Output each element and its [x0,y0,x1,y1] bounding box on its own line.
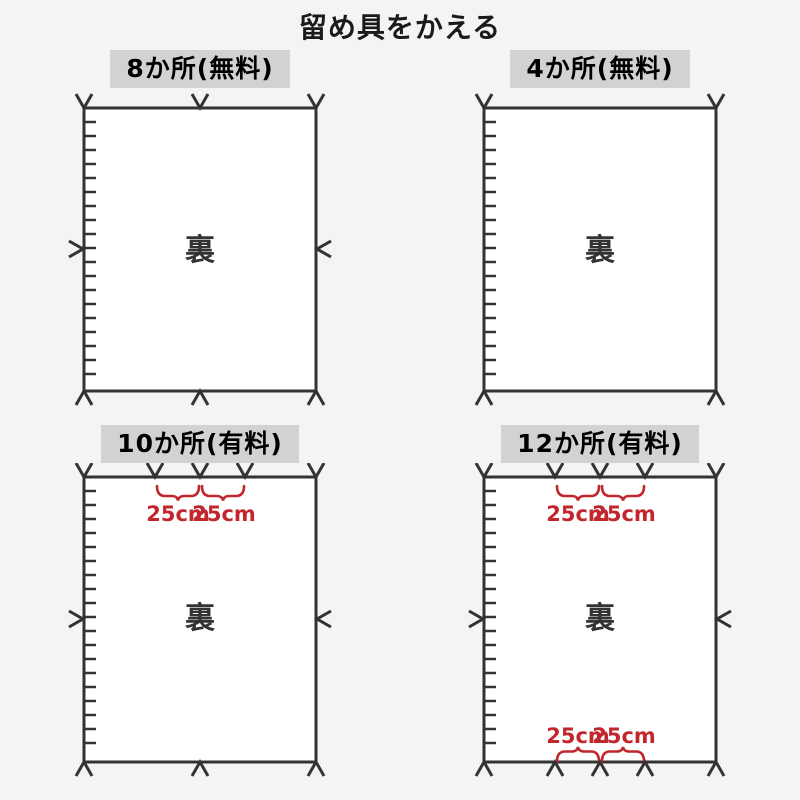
fastener-arrow-icon [708,94,724,108]
fastener-arrow-icon [547,463,563,477]
fastener-arrow-icon [592,762,608,776]
back-label: 裏 [585,601,616,636]
fastener-arrow-icon [192,762,208,776]
fastener-arrow-icon [547,762,563,776]
fastener-arrow-icon [308,391,324,405]
back-label: 裏 [585,233,616,268]
measurement-label: 25cm [592,502,656,526]
fastener-arrow-icon [69,241,83,257]
back-label: 裏 [185,601,216,636]
fastener-arrow-icon [469,611,483,627]
panel-header: 10か所(有料) [101,425,299,463]
fastener-arrow-icon [76,463,92,477]
fastener-arrow-icon [476,391,492,405]
fastener-arrow-icon [708,463,724,477]
fastener-arrow-icon [69,611,83,627]
fastener-arrow-icon [708,391,724,405]
fastener-arrow-icon [308,463,324,477]
fastener-arrow-icon [192,94,208,108]
fastener-diagram-8: 裏 [0,88,400,418]
measurement-label: 25cm [192,502,256,526]
fastener-arrow-icon [192,391,208,405]
fastener-arrow-icon [476,94,492,108]
fastener-arrow-icon [708,762,724,776]
fastener-diagram-4: 裏 [400,88,800,418]
fastener-arrow-icon [637,762,653,776]
panel-4-places: 4か所(無料) 裏 [400,45,800,418]
panel-8-places: 8か所(無料) 裏 [0,45,400,418]
fastener-arrow-icon [592,463,608,477]
panel-header: 12か所(有料) [501,425,699,463]
fastener-arrow-icon [76,94,92,108]
fastener-arrow-icon [317,241,331,257]
panel-10-places: 10か所(有料) 25cm 25cm 裏 [0,420,400,800]
fastener-arrow-icon [147,463,163,477]
fastener-arrow-icon [237,463,253,477]
panel-header: 8か所(無料) [110,50,289,88]
panel-12-places: 12か所(有料) 25cm 25cm 25cm 25cm 裏 [400,420,800,800]
fastener-arrow-icon [476,463,492,477]
measurement-label: 25cm [592,724,656,748]
fastener-arrow-icon [76,391,92,405]
fastener-arrow-icon [308,762,324,776]
back-label: 裏 [185,233,216,268]
fastener-arrow-icon [76,762,92,776]
fastener-arrow-icon [637,463,653,477]
fastener-arrow-icon [476,762,492,776]
fastener-arrow-icon [308,94,324,108]
panel-header: 4か所(無料) [510,50,689,88]
fastener-arrow-icon [192,463,208,477]
fastener-arrow-icon [317,611,331,627]
page-title: 留め具をかえる [0,6,800,46]
fastener-arrow-icon [717,611,731,627]
fastener-diagram-10: 25cm 25cm 裏 [0,463,400,800]
fastener-diagram-12: 25cm 25cm 25cm 25cm 裏 [400,463,800,800]
